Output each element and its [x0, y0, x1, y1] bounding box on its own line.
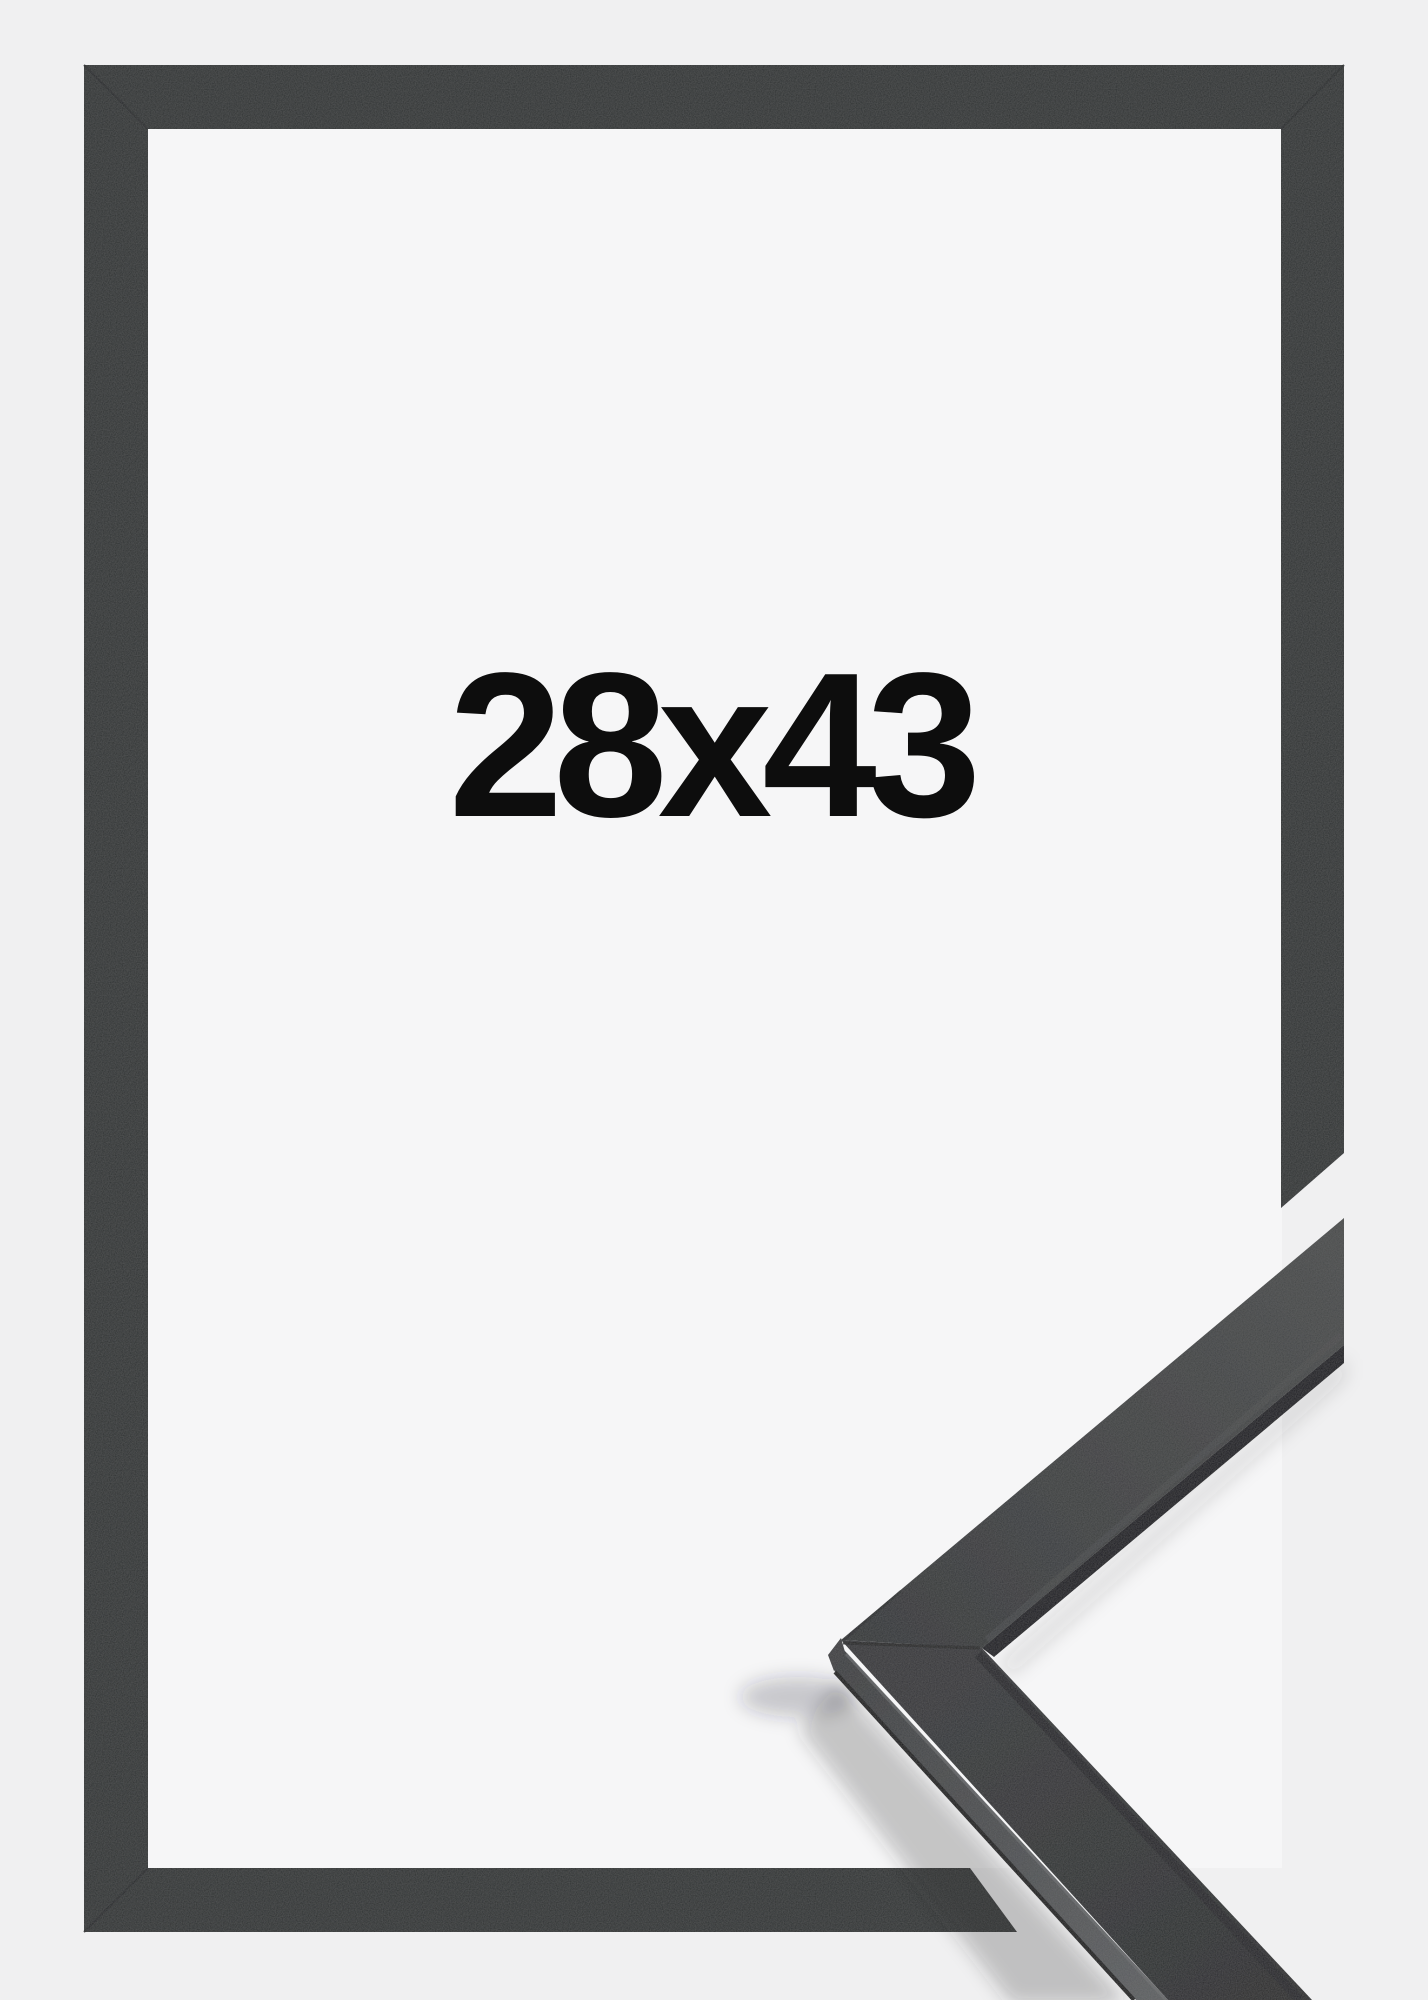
shadow-tip	[740, 1677, 856, 1717]
product-image: 28x43	[0, 0, 1428, 2000]
frame-opening	[148, 129, 1282, 1868]
frame-product-graphic: 28x43	[0, 0, 1428, 2000]
size-label: 28x43	[449, 630, 975, 860]
